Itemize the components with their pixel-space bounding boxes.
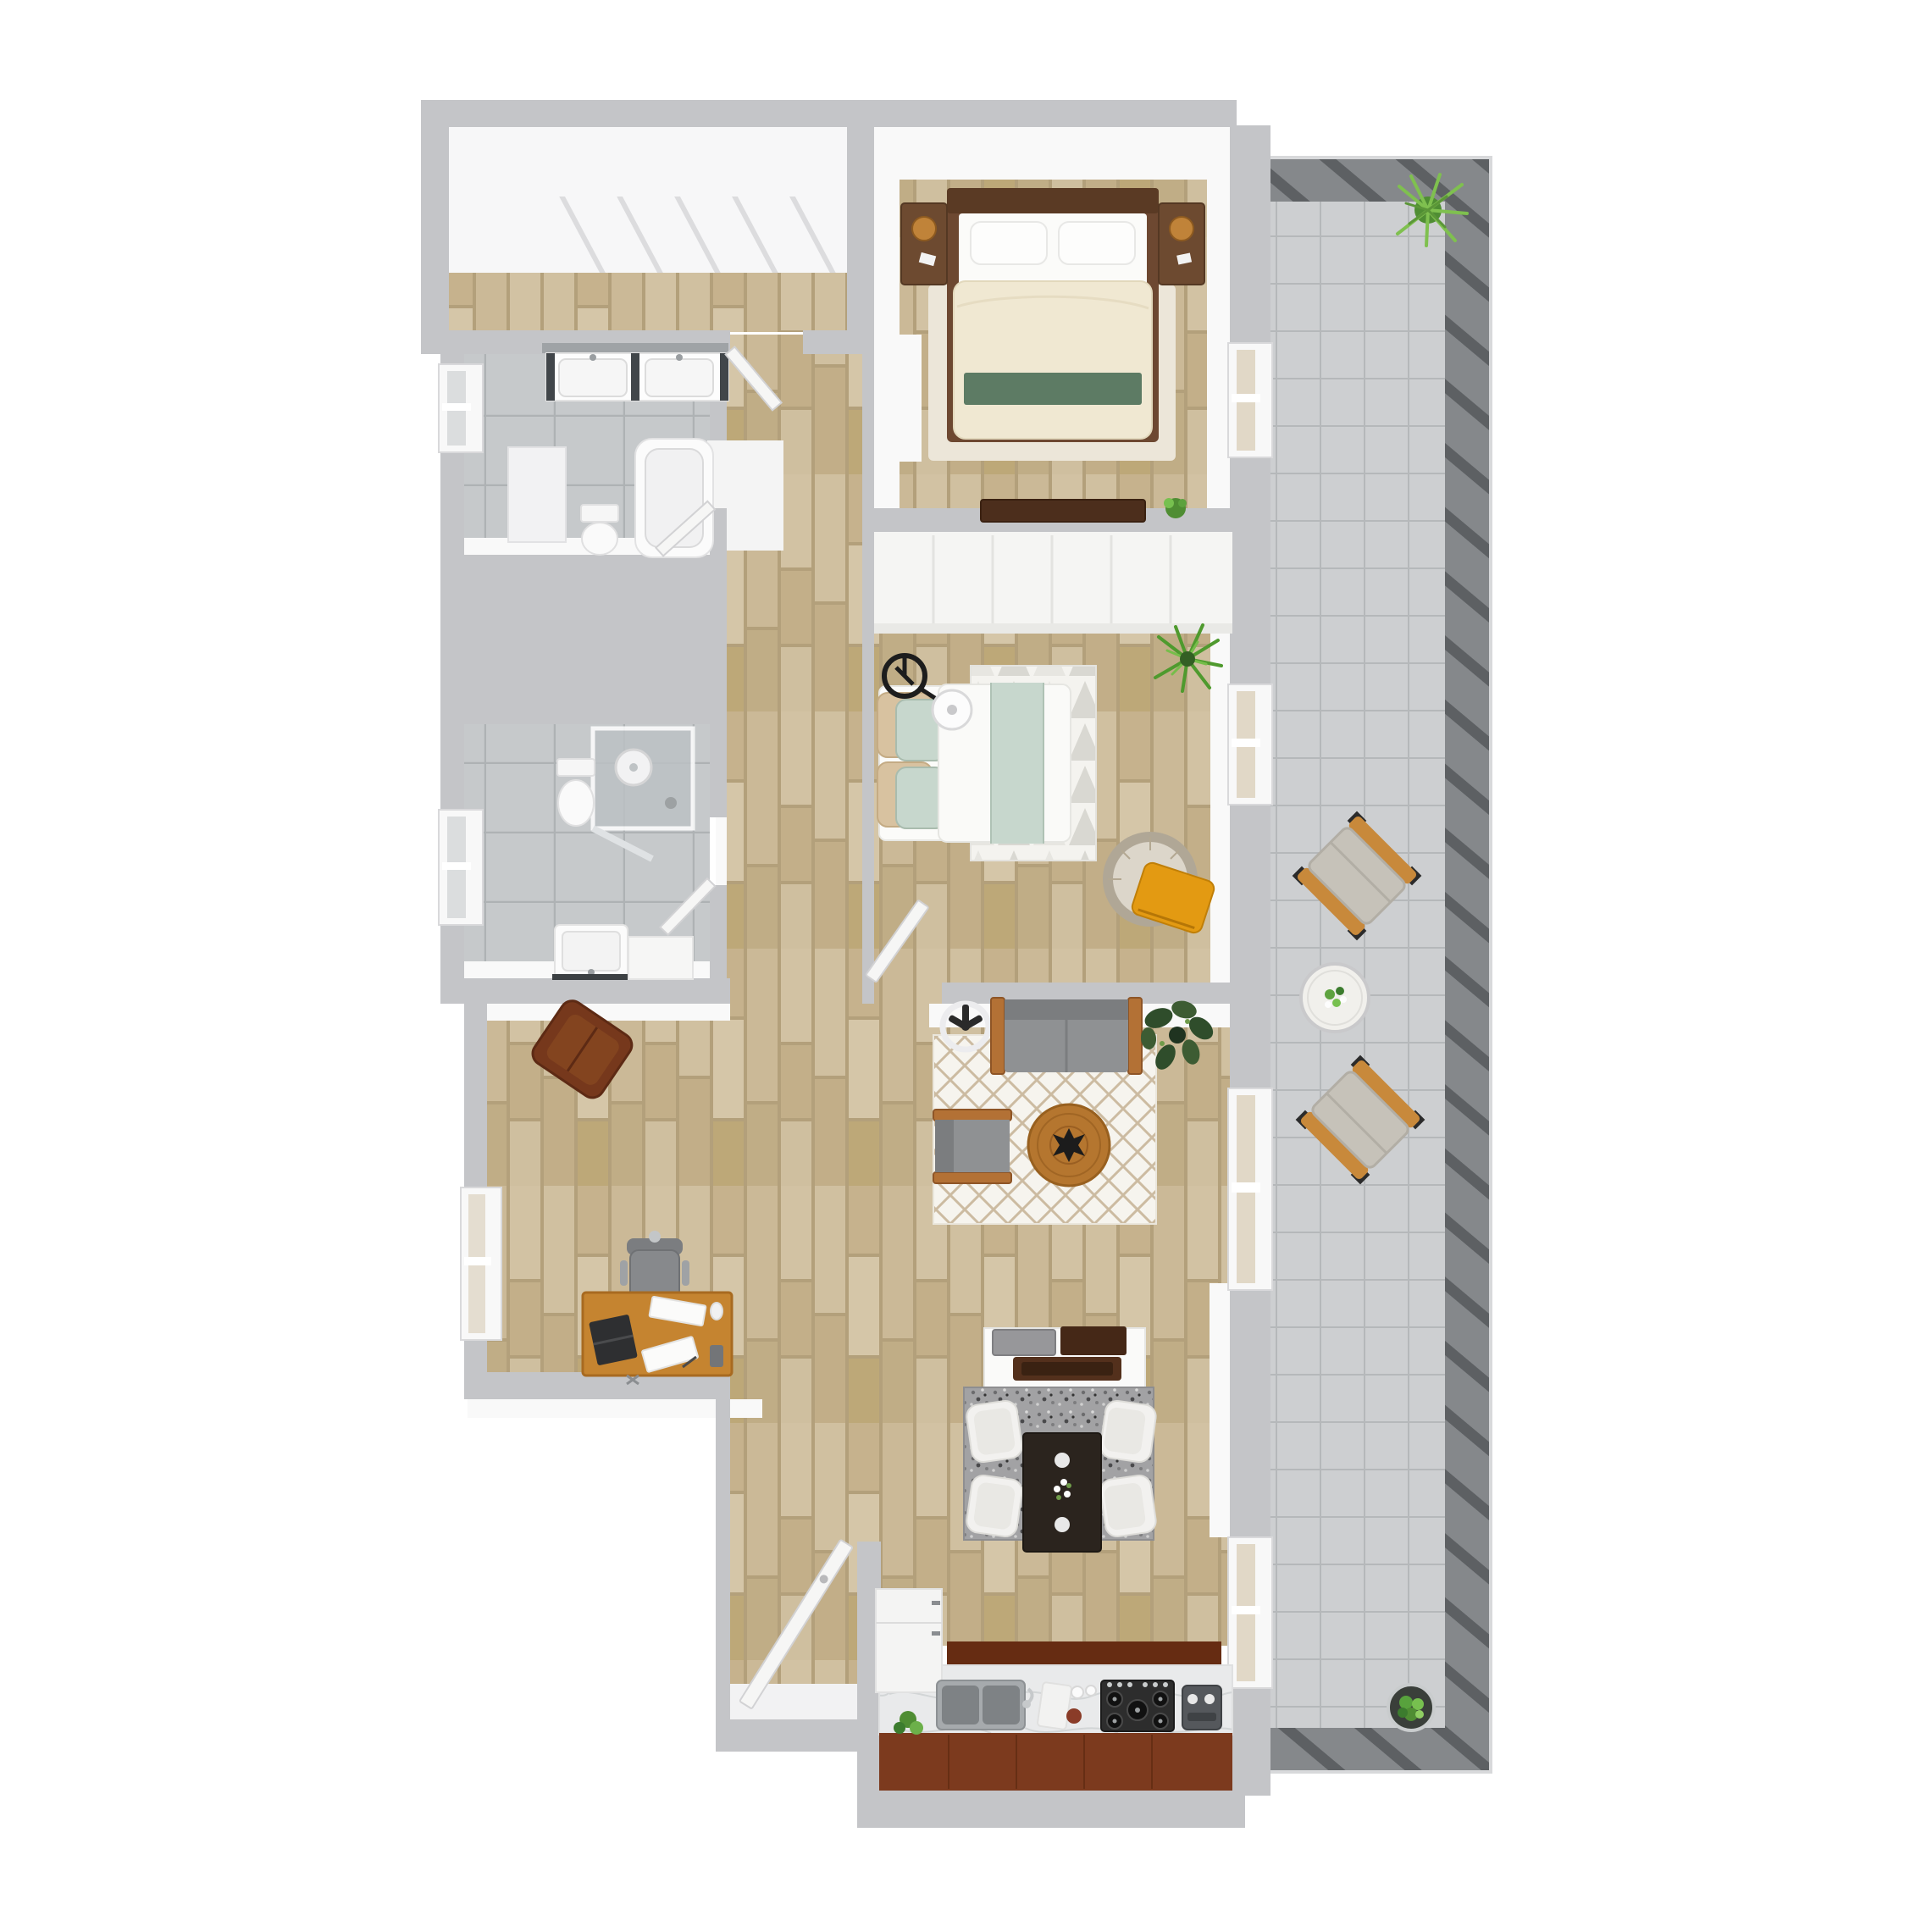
sofa [991,998,1142,1074]
double-vanity [542,343,728,401]
nightstand-left [901,203,947,285]
nightstand-right [1159,203,1204,285]
dining-chair-3 [1099,1399,1158,1464]
wall-entry-left [716,1398,730,1724]
floor-plan-svg [0,0,1932,1932]
plate-2 [1055,1517,1070,1532]
window-bedroom1 [1228,343,1272,457]
dining-chair-4 [1099,1474,1158,1538]
wall-kitchen-bottom [857,1789,1245,1828]
bedroom1-entry-alcove [874,335,922,462]
window-bath1 [439,364,483,452]
sink-basin-right [645,359,713,396]
bedroom2-closet [874,532,1232,634]
bed-runner-green [964,373,1142,405]
jar [1066,1708,1082,1724]
window-bedroom2 [1228,684,1272,805]
entry-floor [730,1374,879,1721]
armchair [933,1110,1011,1183]
toilet-bath2 [557,759,595,826]
wall-hall-left-b [710,508,727,817]
table-lamp-left [912,217,936,241]
sink-basin-left [559,359,627,396]
wall-top [421,100,1237,127]
wall-shaft [440,555,716,724]
closet-shelving [559,197,837,278]
office-top-wall-face [487,1004,730,1021]
queen-bed [877,683,1071,844]
wall-bedroom2-bottom-a [862,983,874,1004]
vanity-mirror [542,343,728,353]
balcony-bistro-table [1301,964,1369,1032]
dining-chair-1 [966,1399,1024,1464]
upper-cabinet-band [947,1641,1221,1667]
bath2-cabinet [628,937,693,979]
pillow-left [971,222,1047,264]
island-dark-box [1060,1326,1127,1355]
window-office [461,1187,501,1340]
shower-drain [665,797,677,809]
vanity2-mirror [552,974,630,980]
vanity-bath2 [552,925,630,980]
window-living [1228,1088,1272,1290]
island-gray-box [993,1330,1055,1355]
balcony-tile-floor [1270,202,1445,1728]
balcony [1267,156,1492,1774]
wall-closet-bedroom-divider [847,100,874,354]
pillow-right [1059,222,1135,264]
bedroom1-top-wall-face [874,125,1232,180]
bed-runner-mint [991,683,1044,844]
coffee-table [1028,1104,1110,1186]
phone [710,1345,723,1367]
dining-table [1023,1433,1101,1552]
window-kitchen [1228,1537,1272,1688]
wall-closet-left [421,100,449,337]
wall-left-b [440,451,464,555]
double-sink [937,1680,1032,1730]
dining-chair-2 [966,1474,1024,1538]
duvet [954,281,1152,439]
balcony-railing-right [1445,159,1489,1770]
base-cabinets [879,1733,1232,1791]
floor-plan-image [0,0,1932,1932]
wall-hall-right-a [862,330,874,525]
balcony-potted-plant [1388,1685,1434,1730]
wall-office-left-a [464,1004,487,1190]
wall-hall-left-c [710,885,727,983]
plate-1 [1055,1453,1070,1468]
table-lamp-right [1170,217,1193,241]
toilet-bath1 [581,505,618,555]
hallway-floor [727,335,862,987]
gas-cooktop [1101,1680,1174,1731]
tall-cabinet-fridge [876,1589,942,1692]
wall-left-a [440,330,464,366]
king-bed [947,188,1159,442]
wall-left-d [440,923,464,1004]
wall-hall-right-b [862,534,874,987]
window-bath2 [439,810,483,925]
living-right-wall-face [1210,1283,1232,1537]
mouse [711,1303,722,1320]
wall-bath2-bottom [464,978,730,1004]
bath1-partition [508,447,566,542]
coffee-machine [1182,1686,1221,1730]
desk [583,1293,732,1384]
wall-left-c [440,724,464,811]
closet-floor [449,273,864,332]
dining-area [964,1326,1157,1552]
low-dresser [981,500,1145,522]
balcony-railing-bottom [1270,1728,1489,1770]
